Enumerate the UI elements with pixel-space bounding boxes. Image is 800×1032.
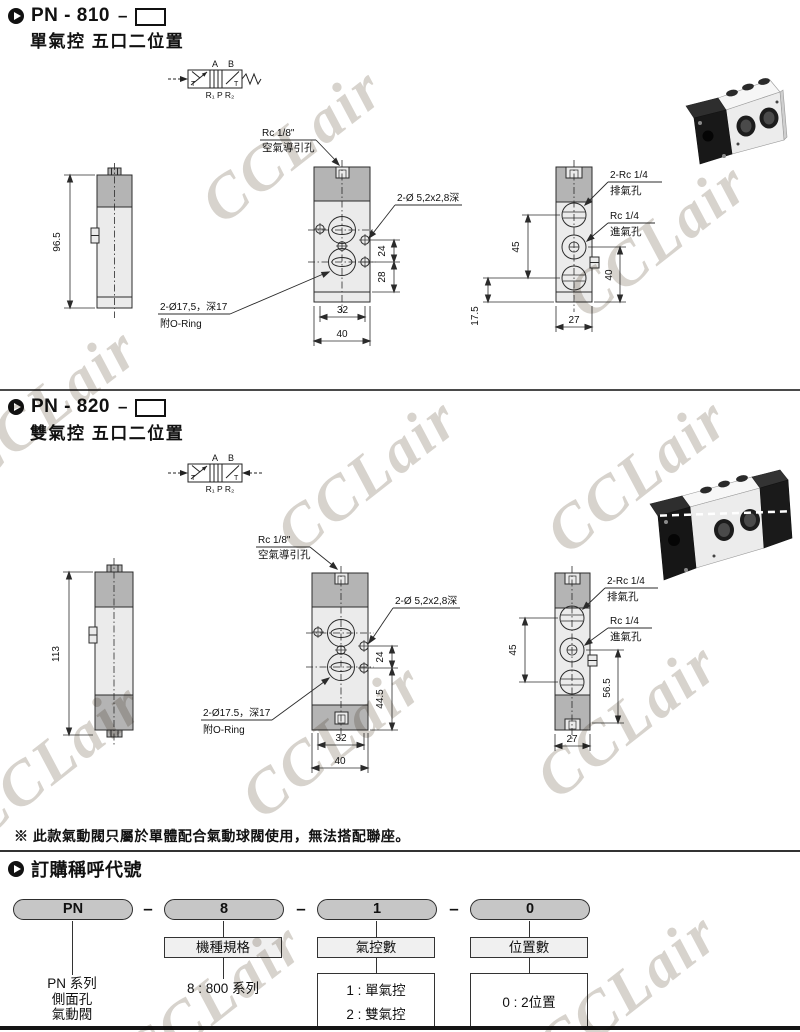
- dim-24: 24: [375, 651, 386, 663]
- pn810-valve-symbol-icon: T T A B R₁ P R₂: [160, 56, 272, 106]
- code-pill-0: 0: [470, 899, 590, 920]
- pn820-subtitle: 雙氣控 五口二位置: [30, 419, 184, 444]
- position-option: 0 : 2位置: [471, 991, 587, 1011]
- label-oring-desc: 附O-Ring: [203, 723, 245, 736]
- connector-line: [376, 957, 378, 973]
- label-pilot-port-desc: 空氣導引孔: [258, 548, 311, 561]
- ordering-title: 訂購稱呼代號: [31, 856, 142, 882]
- dim-40: 40: [334, 756, 346, 767]
- connector-line: [529, 921, 531, 937]
- pn-series-line: PN 系列: [13, 976, 131, 992]
- pn810-technical-drawing: 96.5: [0, 115, 800, 380]
- label-inlet-port: Rc 1/4: [610, 616, 639, 627]
- label-exhaust-port: 2-Rc 1/4: [610, 170, 648, 181]
- pn810-header: PN - 810 –: [8, 5, 166, 27]
- dim-24: 24: [377, 245, 388, 257]
- pn-series-desc: PN 系列 側面孔 氣動閥: [13, 976, 131, 1023]
- label-mount-hole: 2-Ø 5,2x2,8深: [395, 595, 457, 607]
- pilot-options-box: 1 : 單氣控 2 : 雙氣控: [317, 973, 435, 1029]
- code-dash: –: [287, 899, 315, 919]
- ordering-header: 訂購稱呼代號: [8, 856, 142, 882]
- label-oring-hole: 2-Ø17.5，深17: [203, 707, 271, 719]
- position-option-box: 0 : 2位置: [470, 973, 588, 1029]
- pn820-valve-symbol-icon: T T A B R₁ P R₂: [160, 450, 272, 500]
- dim-17-5: 17.5: [470, 306, 481, 326]
- usage-note: ※ 此款氣動閥只屬於單體配合氣動球閥使用，無法搭配聯座。: [14, 826, 410, 846]
- spec-label-box: 機種規格: [164, 937, 282, 958]
- dim-45: 45: [511, 241, 522, 253]
- pn820-left-view: [63, 558, 133, 745]
- pn-series-line: 側面孔: [13, 992, 131, 1008]
- label-pilot-port: Rc 1/8": [258, 535, 291, 546]
- dim-32: 32: [335, 733, 347, 744]
- symbol-t-right: T: [234, 475, 239, 482]
- bottom-rule: [0, 1026, 800, 1030]
- play-icon: [8, 399, 24, 415]
- connector-line: [223, 957, 225, 979]
- pn810-subtitle: 單氣控 五口二位置: [30, 27, 184, 52]
- spec-value: 8 : 800 系列: [157, 981, 289, 997]
- dim-96-5: 96.5: [52, 232, 63, 252]
- label-exhaust-port: 2-Rc 1/4: [607, 576, 645, 587]
- label-inlet-desc: 進氣孔: [610, 225, 642, 238]
- port-b-label: B: [228, 453, 234, 463]
- connector-line: [529, 957, 531, 973]
- symbol-t-right: T: [234, 81, 239, 88]
- port-b-label: B: [228, 59, 234, 69]
- dim-40: 40: [336, 329, 348, 340]
- play-icon: [8, 8, 24, 24]
- pn-series-line: 氣動閥: [13, 1007, 131, 1023]
- dim-45: 45: [508, 644, 519, 656]
- code-pill-pn: PN: [13, 899, 133, 920]
- pn820-model: PN - 820: [31, 396, 110, 418]
- dim-32: 32: [337, 305, 349, 316]
- pn820-technical-drawing: 113: [0, 505, 800, 805]
- symbol-t-left: T: [191, 81, 196, 88]
- pn810-model: PN - 810: [31, 5, 110, 27]
- label-inlet-desc: 進氣孔: [610, 630, 642, 643]
- label-pilot-port-desc: 空氣導引孔: [262, 141, 315, 154]
- symbol-t-left: T: [191, 475, 196, 482]
- pn820-front-view: [201, 547, 460, 773]
- section-divider-1: [0, 389, 800, 391]
- label-exhaust-desc: 排氣孔: [610, 184, 642, 197]
- dim-56-5: 56.5: [602, 678, 613, 698]
- dim-113: 113: [51, 646, 62, 662]
- label-oring-hole: 2-Ø17,5，深17: [160, 301, 228, 313]
- label-oring-desc: 附O-Ring: [160, 317, 202, 330]
- connector-line: [72, 921, 74, 975]
- model-dash: –: [118, 6, 127, 26]
- connector-line: [223, 921, 225, 937]
- dim-27: 27: [566, 734, 578, 745]
- port-a-label: A: [212, 59, 218, 69]
- label-pilot-port: Rc 1/8": [262, 128, 295, 139]
- port-a-label: A: [212, 453, 218, 463]
- pn810-front-view: [158, 140, 462, 346]
- position-label-box: 位置數: [470, 937, 588, 958]
- pilot-option: 2 : 雙氣控: [318, 1003, 434, 1023]
- port-bottom-labels: R₁ P R₂: [206, 484, 235, 494]
- connector-line: [376, 921, 378, 937]
- model-option-box-icon: [135, 399, 166, 417]
- dim-27: 27: [568, 315, 580, 326]
- dim-44-5: 44.5: [375, 689, 386, 709]
- pilot-option: 1 : 單氣控: [318, 979, 434, 999]
- label-exhaust-desc: 排氣孔: [607, 590, 639, 603]
- pilot-label-box: 氣控數: [317, 937, 435, 958]
- section-divider-2: [0, 850, 800, 852]
- catalog-page: PN - 810 – 單氣控 五口二位置 T T A B R₁ P R₂: [0, 0, 800, 1032]
- label-mount-hole: 2-Ø 5,2x2,8深: [397, 192, 459, 204]
- play-icon: [8, 861, 24, 877]
- port-bottom-labels: R₁ P R₂: [206, 90, 235, 100]
- pn820-header: PN - 820 –: [8, 396, 166, 418]
- code-dash: –: [440, 899, 468, 919]
- watermark: CCLair: [108, 908, 318, 1032]
- code-dash: –: [134, 899, 162, 919]
- model-dash: –: [118, 397, 127, 417]
- pn810-left-view: [64, 163, 132, 318]
- code-pill-1: 1: [317, 899, 437, 920]
- dim-28: 28: [377, 271, 388, 283]
- dim-40-side: 40: [604, 269, 615, 281]
- code-pill-8: 8: [164, 899, 284, 920]
- label-inlet-port: Rc 1/4: [610, 211, 639, 222]
- model-option-box-icon: [135, 8, 166, 26]
